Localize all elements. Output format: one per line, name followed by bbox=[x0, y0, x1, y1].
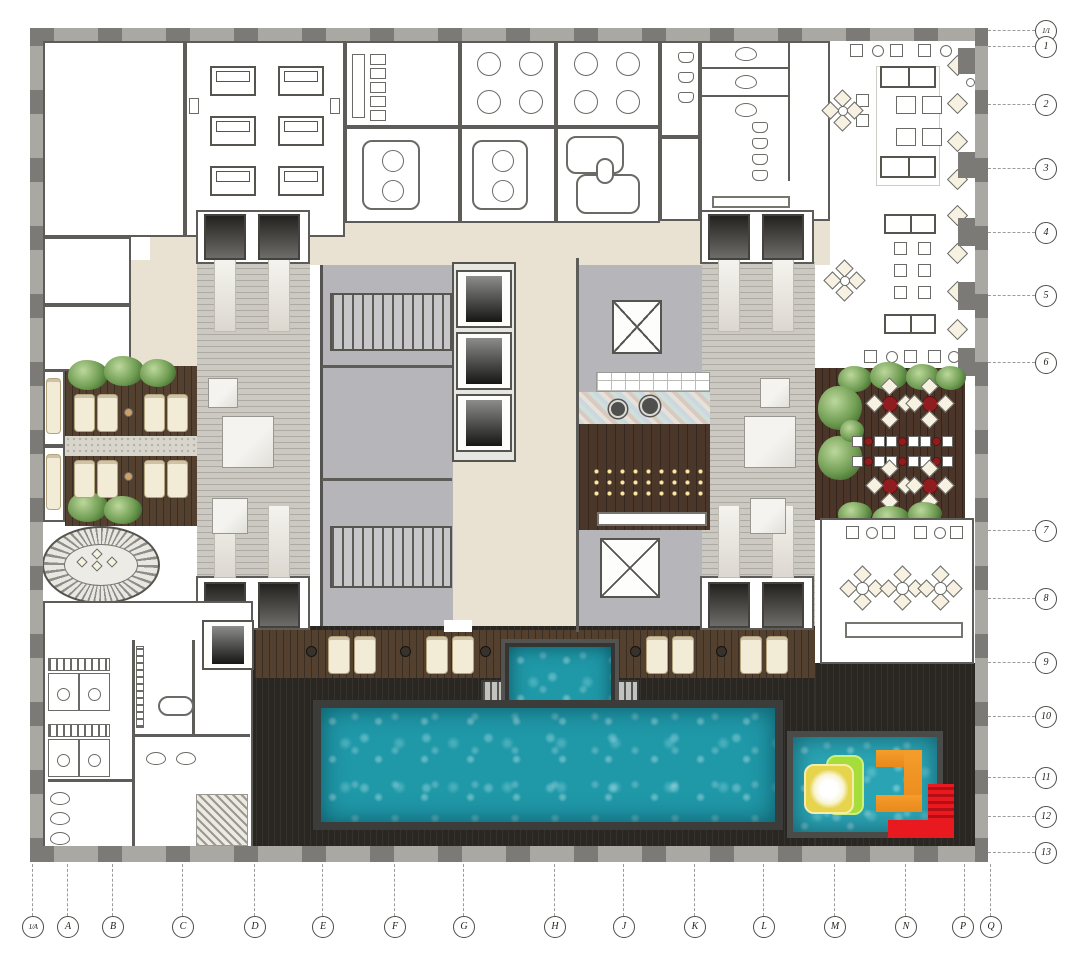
potted-plant bbox=[68, 360, 108, 390]
leader-line bbox=[988, 777, 1035, 778]
elevator-car bbox=[466, 276, 502, 322]
grid-bubble: L bbox=[753, 916, 775, 938]
leader-line bbox=[32, 864, 33, 916]
grid-bubble: 3 bbox=[1035, 158, 1057, 180]
exterior-wall-right bbox=[975, 28, 988, 862]
leader-line bbox=[834, 864, 835, 916]
tiled-wall bbox=[136, 646, 144, 728]
shower-head bbox=[57, 688, 70, 701]
exterior-wall-top bbox=[30, 28, 988, 41]
water-slide-red bbox=[888, 820, 954, 838]
carpet-runner bbox=[268, 260, 290, 332]
sink bbox=[382, 180, 404, 202]
stool bbox=[882, 526, 895, 539]
plant-diamond bbox=[835, 283, 853, 301]
stairs bbox=[330, 526, 452, 588]
stool bbox=[918, 264, 931, 277]
leader-line bbox=[988, 46, 1035, 47]
wall bbox=[192, 640, 195, 736]
elevator-car bbox=[212, 626, 244, 664]
grid-bubble: G bbox=[453, 916, 475, 938]
bath-fitting bbox=[596, 158, 614, 184]
elevator bbox=[456, 270, 512, 328]
marble-panel bbox=[212, 498, 248, 534]
treadmill bbox=[210, 66, 256, 96]
buffet-counter bbox=[845, 622, 963, 638]
sun-lounger bbox=[328, 636, 350, 674]
coffee-table bbox=[922, 128, 942, 146]
tiled-floor bbox=[196, 794, 248, 846]
lobby-corridor bbox=[453, 452, 515, 632]
marble-panel bbox=[744, 416, 796, 468]
stairs bbox=[330, 293, 452, 351]
table bbox=[934, 582, 947, 595]
elevator-car bbox=[466, 338, 502, 384]
grid-bubble: 12 bbox=[1035, 806, 1057, 828]
carpet-runner bbox=[718, 260, 740, 332]
dining-table bbox=[864, 437, 873, 446]
massage-bed bbox=[708, 214, 750, 260]
grid-bubble: B bbox=[102, 916, 124, 938]
stool bbox=[866, 527, 878, 539]
treadmill bbox=[210, 116, 256, 146]
spa-stool bbox=[477, 90, 501, 114]
treadmill bbox=[278, 66, 324, 96]
bar-table bbox=[609, 400, 627, 418]
elevator-bank bbox=[452, 262, 516, 462]
leader-line bbox=[112, 864, 113, 916]
chair bbox=[852, 436, 863, 447]
urinal bbox=[678, 52, 694, 63]
stall-wall bbox=[700, 95, 788, 97]
treadmill bbox=[278, 116, 324, 146]
console-table bbox=[189, 98, 199, 114]
chair bbox=[852, 456, 863, 467]
lounger-pillow bbox=[306, 646, 317, 657]
marble-panel bbox=[208, 378, 238, 408]
dining-table bbox=[898, 457, 907, 466]
leader-line bbox=[990, 864, 991, 916]
leader-line bbox=[964, 864, 965, 916]
wall bbox=[322, 478, 452, 481]
carpet-runner bbox=[214, 260, 236, 332]
bar-lights bbox=[590, 466, 708, 502]
sun-lounger bbox=[426, 636, 448, 674]
leader-line bbox=[988, 168, 1035, 169]
marble-panel bbox=[750, 498, 786, 534]
room bbox=[43, 237, 131, 305]
chair bbox=[886, 436, 897, 447]
wall-diamond-decor bbox=[947, 319, 968, 340]
spa-stool bbox=[616, 90, 640, 114]
massage-bed bbox=[204, 214, 246, 260]
toilet bbox=[50, 792, 70, 805]
sun-lounger bbox=[46, 378, 61, 434]
grid-bubble: 9 bbox=[1035, 652, 1057, 674]
stool bbox=[864, 350, 877, 363]
stool bbox=[918, 286, 931, 299]
wall bbox=[132, 734, 250, 737]
grid-bubble: P bbox=[952, 916, 974, 938]
stool bbox=[918, 242, 931, 255]
stool bbox=[894, 264, 907, 277]
grid-bubble: N bbox=[895, 916, 917, 938]
leader-line bbox=[254, 864, 255, 916]
stool bbox=[940, 45, 952, 57]
potted-plant bbox=[104, 496, 142, 524]
grid-bubble: 6 bbox=[1035, 352, 1057, 374]
wall bbox=[48, 779, 134, 782]
chair bbox=[942, 436, 953, 447]
table bbox=[896, 582, 909, 595]
potted-plant bbox=[140, 359, 176, 387]
bar-counter bbox=[597, 512, 707, 526]
leader-line bbox=[463, 864, 464, 916]
column bbox=[958, 218, 976, 246]
stall-wall bbox=[788, 41, 790, 181]
armchair bbox=[896, 96, 916, 114]
elevator bbox=[456, 394, 512, 452]
shower-head bbox=[88, 754, 101, 767]
leader-line bbox=[988, 530, 1035, 531]
shower-head bbox=[57, 754, 70, 767]
main-pool bbox=[313, 700, 783, 830]
toilet bbox=[735, 75, 757, 89]
leader-line bbox=[988, 362, 1035, 363]
exterior-wall-bottom bbox=[30, 846, 988, 862]
elevator bbox=[202, 620, 254, 670]
toilet bbox=[735, 47, 757, 61]
sun-lounger bbox=[452, 636, 474, 674]
elevator-car bbox=[466, 400, 502, 446]
plant-diamond bbox=[833, 113, 851, 131]
shelf-counter bbox=[352, 54, 365, 118]
sink bbox=[492, 180, 514, 202]
water-fountain bbox=[810, 770, 848, 808]
sink bbox=[492, 150, 514, 172]
chair bbox=[874, 436, 885, 447]
dining-table bbox=[922, 396, 938, 412]
treatment-room bbox=[460, 41, 556, 127]
toilet bbox=[50, 832, 70, 845]
stool bbox=[894, 286, 907, 299]
leader-line bbox=[988, 716, 1035, 717]
grid-bubble: 4 bbox=[1035, 222, 1057, 244]
carpet-runner bbox=[772, 260, 794, 332]
leader-line bbox=[988, 232, 1035, 233]
service-shaft bbox=[600, 538, 660, 598]
grid-bubble: 13 bbox=[1035, 842, 1057, 864]
urinal bbox=[752, 154, 768, 165]
carpet-runner bbox=[268, 506, 290, 578]
dining-table bbox=[932, 437, 941, 446]
grid-bubble: J bbox=[613, 916, 635, 938]
grid-bubble: H bbox=[544, 916, 566, 938]
marble-panel bbox=[222, 416, 274, 468]
grid-bubble: E bbox=[312, 916, 334, 938]
sofa bbox=[884, 214, 936, 234]
grid-bubble: A bbox=[57, 916, 79, 938]
planter-hedge bbox=[936, 366, 966, 390]
spa-stool bbox=[519, 52, 543, 76]
locker-row bbox=[48, 724, 110, 737]
massage-bed bbox=[258, 582, 300, 628]
sun-lounger bbox=[646, 636, 668, 674]
grid-bubble: Q bbox=[980, 916, 1002, 938]
sun-lounger bbox=[97, 394, 118, 432]
side-table bbox=[838, 106, 848, 116]
stool bbox=[850, 44, 863, 57]
grid-bubble: 2 bbox=[1035, 94, 1057, 116]
armchair bbox=[922, 96, 942, 114]
wc-room bbox=[660, 137, 700, 221]
massage-bed bbox=[762, 214, 804, 260]
service-shaft bbox=[612, 300, 662, 354]
sofa bbox=[880, 66, 936, 88]
toilet bbox=[50, 812, 70, 825]
chair bbox=[908, 436, 919, 447]
sun-lounger bbox=[144, 394, 165, 432]
grid-bubble: 8 bbox=[1035, 588, 1057, 610]
potted-plant bbox=[104, 356, 144, 386]
bar-backsplash bbox=[596, 372, 710, 392]
side-table bbox=[124, 408, 133, 417]
grid-bubble: 1/A bbox=[22, 916, 44, 938]
lounger-pillow bbox=[400, 646, 411, 657]
spa-stool bbox=[574, 52, 598, 76]
locker-row bbox=[48, 658, 110, 671]
stool bbox=[918, 44, 931, 57]
massage-bed bbox=[258, 214, 300, 260]
urinal bbox=[752, 170, 768, 181]
grid-bubble: 10 bbox=[1035, 706, 1057, 728]
shower-head bbox=[88, 688, 101, 701]
spa-stool bbox=[519, 90, 543, 114]
leader-line bbox=[988, 598, 1035, 599]
side-table bbox=[124, 472, 133, 481]
leader-line bbox=[988, 104, 1035, 105]
lobby-corridor bbox=[513, 260, 579, 632]
massage-bed bbox=[762, 582, 804, 628]
leader-line bbox=[67, 864, 68, 916]
leader-line bbox=[988, 852, 1035, 853]
urinal bbox=[678, 92, 694, 103]
toilet bbox=[146, 752, 166, 765]
leader-line bbox=[988, 30, 1035, 31]
side-table bbox=[840, 276, 850, 286]
stool bbox=[914, 526, 927, 539]
leader-line bbox=[905, 864, 906, 916]
leader-line bbox=[694, 864, 695, 916]
wall bbox=[132, 640, 135, 848]
leader-line bbox=[988, 816, 1035, 817]
coffee-table bbox=[896, 128, 916, 146]
sun-lounger bbox=[46, 454, 61, 510]
leader-line bbox=[394, 864, 395, 916]
column bbox=[958, 152, 976, 178]
grid-bubble: 7 bbox=[1035, 520, 1057, 542]
stool bbox=[904, 350, 917, 363]
grid-bubble: K bbox=[684, 916, 706, 938]
spa-stool bbox=[477, 52, 501, 76]
door-gap bbox=[444, 620, 472, 632]
stool bbox=[934, 527, 946, 539]
elevator bbox=[456, 332, 512, 390]
table bbox=[856, 582, 869, 595]
grid-bubble: 1 bbox=[1035, 36, 1057, 58]
treatment-room bbox=[556, 41, 660, 127]
wall-diamond-decor bbox=[947, 93, 968, 114]
stool bbox=[890, 44, 903, 57]
leader-line bbox=[623, 864, 624, 916]
grid-bubble: D bbox=[244, 916, 266, 938]
urinal bbox=[752, 122, 768, 133]
water-slide-orange bbox=[876, 795, 922, 812]
sun-lounger bbox=[74, 460, 95, 498]
lounger-pillow bbox=[630, 646, 641, 657]
dining-table bbox=[864, 457, 873, 466]
toilet bbox=[735, 103, 757, 117]
dining-table bbox=[922, 478, 938, 494]
floor-plan-canvas: 1/1 1 2 3 4 5 6 7 8 9 10 11 12 13 1/A A … bbox=[0, 0, 1080, 957]
wall bbox=[322, 365, 452, 368]
decor-pot bbox=[966, 78, 975, 87]
sun-lounger bbox=[144, 460, 165, 498]
sun-lounger bbox=[74, 394, 95, 432]
chair bbox=[908, 456, 919, 467]
exterior-wall-left bbox=[30, 28, 43, 862]
wall-diamond-decor bbox=[947, 243, 968, 264]
carpet-runner bbox=[718, 506, 740, 578]
urinal bbox=[678, 72, 694, 83]
stool bbox=[894, 242, 907, 255]
massage-bed bbox=[708, 582, 750, 628]
sun-lounger bbox=[167, 460, 188, 498]
toilet bbox=[176, 752, 196, 765]
sink bbox=[382, 150, 404, 172]
grid-bubble: 5 bbox=[1035, 285, 1057, 307]
wash-counter bbox=[712, 196, 790, 208]
grid-bubble: 11 bbox=[1035, 767, 1057, 789]
column bbox=[958, 282, 976, 310]
bar-table bbox=[640, 396, 660, 416]
dining-table bbox=[898, 437, 907, 446]
urinal bbox=[752, 138, 768, 149]
stone-path bbox=[65, 436, 197, 456]
spa-stool bbox=[616, 52, 640, 76]
leader-line bbox=[554, 864, 555, 916]
bench bbox=[158, 696, 194, 716]
bathtub bbox=[566, 136, 624, 174]
sun-lounger bbox=[97, 460, 118, 498]
shelf bbox=[370, 82, 386, 93]
leader-line bbox=[988, 295, 1035, 296]
shelf bbox=[370, 96, 386, 107]
sofa bbox=[884, 314, 936, 334]
stool bbox=[872, 45, 884, 57]
wall-diamond-decor bbox=[947, 131, 968, 152]
shelf bbox=[370, 110, 386, 121]
stool bbox=[846, 526, 859, 539]
sofa bbox=[880, 156, 936, 178]
grid-bubble: C bbox=[172, 916, 194, 938]
plant-diamond bbox=[847, 271, 865, 289]
lobby-corridor bbox=[130, 260, 197, 368]
shelf bbox=[370, 68, 386, 79]
studio-room bbox=[43, 41, 185, 237]
spa-stool bbox=[574, 90, 598, 114]
sun-lounger bbox=[740, 636, 762, 674]
leader-line bbox=[988, 662, 1035, 663]
dining-table bbox=[882, 478, 898, 494]
sun-lounger bbox=[766, 636, 788, 674]
sun-lounger bbox=[167, 394, 188, 432]
chair bbox=[942, 456, 953, 467]
sun-lounger bbox=[354, 636, 376, 674]
grid-bubble: M bbox=[824, 916, 846, 938]
sun-lounger bbox=[672, 636, 694, 674]
lounger-pillow bbox=[480, 646, 491, 657]
leader-line bbox=[322, 864, 323, 916]
treadmill bbox=[278, 166, 324, 196]
leader-line bbox=[182, 864, 183, 916]
leader-line bbox=[763, 864, 764, 916]
marble-panel bbox=[760, 378, 790, 408]
console-table bbox=[330, 98, 340, 114]
shelf bbox=[370, 54, 386, 65]
treadmill bbox=[210, 166, 256, 196]
chair bbox=[920, 436, 931, 447]
stool bbox=[928, 350, 941, 363]
stall-wall bbox=[700, 67, 788, 69]
lounger-pillow bbox=[716, 646, 727, 657]
grid-bubble: F bbox=[384, 916, 406, 938]
column bbox=[958, 48, 976, 74]
stool bbox=[950, 526, 963, 539]
dining-table bbox=[882, 396, 898, 412]
